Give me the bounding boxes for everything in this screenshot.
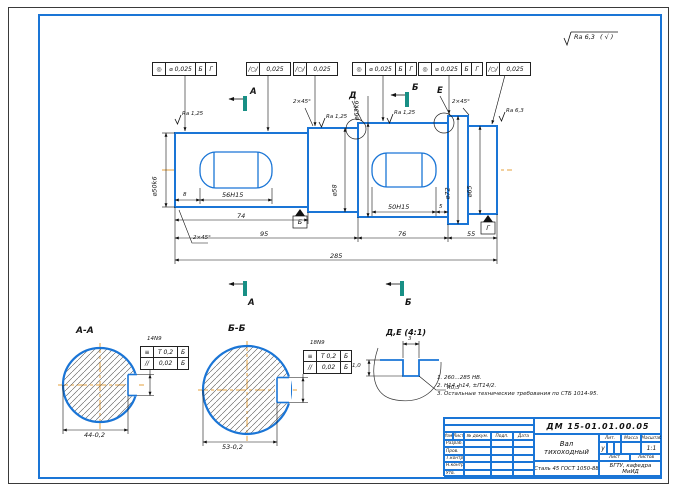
detail-view: [366, 341, 446, 401]
tb-designation: ДМ 15-01.01.00.05: [534, 418, 662, 434]
dim-keyway1-length: 56H15: [222, 192, 243, 199]
runout-icon: ◎: [153, 63, 166, 75]
tb-scale-value: 1:1: [641, 442, 662, 454]
chamfer-note-left: 2×45°: [193, 236, 211, 242]
datum-label-g: Г: [484, 225, 492, 232]
detail-mark-d: Д: [349, 92, 357, 101]
tb-row-utv: Утв.: [444, 470, 464, 477]
section-mark-a-bottom: А: [248, 299, 255, 308]
dim-length-2: 95: [260, 231, 268, 238]
runout-icon: ◎: [353, 63, 366, 75]
section-mark-a-top: А: [250, 88, 257, 97]
tolerance-frame-3: /○/ 0,025: [293, 62, 338, 76]
section-bb-dia: 53-0,2: [222, 444, 243, 451]
section-mark-b-bottom: Б: [405, 299, 411, 308]
tolerance-frame-1: ◎ ⌀ 0,025 Б Г: [152, 62, 217, 76]
dim-dia-3: ⌀63k6: [354, 100, 361, 120]
roughness-end: Ra 6,3: [506, 109, 524, 115]
section-mark-b-top: Б: [412, 84, 418, 93]
tb-blank-row-2: [444, 425, 534, 432]
aa-frame-parallelism: // 0,02 Б: [140, 357, 189, 370]
section-aa-title: А-А: [76, 327, 94, 336]
detail-title: Д,Е (4:1): [386, 329, 426, 337]
tb-hdr-data: Дата: [513, 432, 534, 440]
dim-dia-4: ⌀72: [445, 187, 452, 199]
dim-keyway2-offset: 5: [439, 205, 443, 211]
tb-organization: БГТУ, кафедра МиИД: [599, 461, 662, 477]
dim-dia-1: ⌀50k6: [152, 176, 159, 196]
chamfer-note-right: 2×45°: [452, 100, 470, 106]
tech-note-2: 2. Н14, h14, ±IT14/2.: [437, 384, 496, 390]
datum-label-b: Б: [296, 219, 304, 226]
dim-length-3: 76: [398, 231, 406, 238]
section-bb-view: [203, 346, 308, 446]
cylindricity-icon: /○/: [247, 63, 260, 75]
drawing-sheet: Ra 6,3 ( √ ) ◎ ⌀ 0,025 Б Г /○/ 0,025 /○/…: [0, 0, 677, 491]
cylindricity-icon: /○/: [487, 63, 500, 75]
tb-row-tkontr: Т.контр.: [444, 455, 464, 462]
tb-blank-row-1: [444, 418, 534, 425]
tolerance-frame-4: ◎ ⌀ 0,025 Б Г: [352, 62, 417, 76]
tb-hdr-doc: № докум.: [464, 432, 491, 440]
dim-dia-2: ⌀58: [332, 184, 339, 196]
detail-groove-depth: 1,0: [352, 364, 361, 370]
detail-groove-width: 3: [408, 337, 412, 343]
runout-icon: ◎: [419, 63, 432, 75]
tech-note-1: 1. 260...285 НВ.: [437, 376, 482, 382]
general-roughness-label: Ra 6,3: [574, 34, 595, 41]
dim-keyway2-length: 50H15: [388, 204, 409, 211]
section-bb-keyway-width: 18N9: [310, 341, 325, 347]
tech-note-3: 3. Остальные технические требования по С…: [437, 392, 598, 398]
tb-lit-value: у: [599, 442, 607, 454]
tb-lit-label: Лит.: [599, 434, 621, 442]
dim-keyway1-offset: 8: [183, 193, 187, 199]
tb-hdr-izm: Изм.: [444, 432, 453, 440]
parallelism-icon: //: [304, 362, 317, 373]
tb-sheet-label: Лист: [599, 454, 630, 461]
tolerance-frame-6: /○/ 0,025: [486, 62, 531, 76]
tb-row-razrab: Разраб.: [444, 440, 464, 447]
tolerance-frame-5: ◎ ⌀ 0,025 Б Г: [418, 62, 483, 76]
tb-part-name: Вал тихоходный: [534, 434, 599, 461]
section-aa-dia: 44-0,2: [84, 432, 105, 439]
tb-row-nkontr: Н.контр.: [444, 462, 464, 469]
title-block: Изм. Лист № докум. Подп. Дата Разраб. Пр…: [443, 417, 661, 476]
tb-hdr-podp: Подп.: [491, 432, 513, 440]
tb-massa-value: [621, 442, 641, 454]
tb-scale-label: Масштаб: [641, 434, 662, 442]
cylindricity-icon: /○/: [294, 63, 307, 75]
roughness-journal-3: Ra 1,25: [394, 111, 415, 117]
tb-massa-label: Масса: [621, 434, 641, 442]
section-aa-keyway-width: 14N9: [147, 337, 162, 343]
roughness-journal-1: Ra 1,25: [182, 112, 203, 118]
roughness-journal-2: Ra 1,25: [326, 115, 347, 121]
tb-row-prov: Пров.: [444, 447, 464, 454]
parallelism-icon: //: [141, 358, 154, 369]
tolerance-frame-2: /○/ 0,025: [246, 62, 291, 76]
tb-sheets-label: Листов: [630, 454, 662, 461]
general-roughness-alt: ( √ ): [600, 34, 613, 41]
tb-material: Сталь 45 ГОСТ 1050-88: [534, 461, 599, 477]
dim-dia-5: ⌀65: [467, 185, 474, 197]
tb-hdr-list: Лист: [453, 432, 464, 440]
dim-length-4: 55: [467, 231, 475, 238]
dim-length-1: 74: [237, 213, 245, 220]
dim-total-length: 285: [330, 253, 342, 260]
section-bb-title: Б-Б: [228, 325, 245, 334]
bb-frame-parallelism: // 0,02 Б: [303, 361, 352, 374]
chamfer-note-mid: 2×45°: [293, 100, 311, 106]
detail-mark-e: Е: [437, 87, 443, 96]
